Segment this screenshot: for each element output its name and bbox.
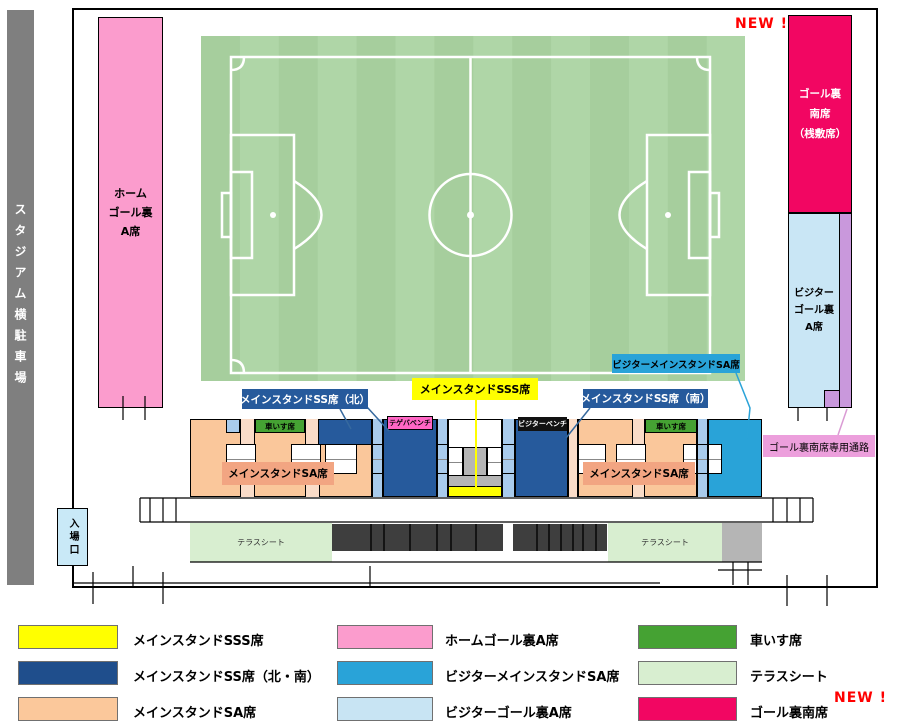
legend-swatch xyxy=(337,661,433,685)
legend-label: メインスタンドSS席（北・南） xyxy=(133,666,320,685)
wheelchair-box-south: 車いす席 xyxy=(645,419,697,433)
legend-label: ホームゴール裏A席 xyxy=(445,630,559,649)
terrace-seat-north: テラスシート xyxy=(190,523,332,562)
legend-item-home-goal-a xyxy=(337,625,433,653)
pitch-stripes xyxy=(201,36,745,381)
vomitory-box xyxy=(708,444,722,474)
legend-swatch xyxy=(638,697,737,721)
stair-cell xyxy=(437,444,448,474)
south-goal-label-line3: （桟敷席） xyxy=(794,124,847,144)
callout-sss-label: メインスタンドSSS席 xyxy=(412,378,538,400)
legend-swatch xyxy=(638,625,737,649)
legend-label: メインスタンドSSS席 xyxy=(133,630,264,649)
callout-visitor-sa-label: ビジターメインスタンドSA席 xyxy=(612,354,740,373)
terrace-label-text: テラスシート xyxy=(641,537,689,548)
corridor-callout-text: ゴール裏南席専用通路 xyxy=(769,439,869,454)
visitor-goal-a-label-line2: ゴール裏 xyxy=(794,302,834,319)
sa-stand-label-text: メインスタンドSA席 xyxy=(589,466,688,481)
aisle-column xyxy=(568,419,578,497)
visitor-goal-a-label-line1: ビジター xyxy=(794,285,834,302)
legend-swatch xyxy=(18,697,118,721)
visitor-goal-a-label-line3: A席 xyxy=(794,319,834,336)
legend-new-badge: NEW ! xyxy=(834,690,887,706)
entrance-label: 入場口 xyxy=(65,518,80,557)
legend-item-wheelchair xyxy=(638,625,737,653)
corridor-strip xyxy=(839,214,851,407)
pitch-drawing xyxy=(201,36,745,381)
home-goal-a-section: ホーム ゴール裏 A席 xyxy=(98,17,163,408)
corridor-callout-label: ゴール裏南席専用通路 xyxy=(763,435,875,457)
stadium-seat-map: スタジアム横駐車場 NEW ! xyxy=(0,0,901,728)
gray-utility-box xyxy=(722,523,762,562)
legend-item-terrace xyxy=(638,661,737,689)
legend-label: ゴール裏南席 xyxy=(750,702,828,721)
south-goal-label-line2: 南席 xyxy=(794,104,847,124)
stair-cell xyxy=(502,444,515,474)
vomitory-box xyxy=(487,447,502,476)
back-blocks-group-b xyxy=(513,524,607,551)
sa-stand-label-north: メインスタンドSA席 xyxy=(222,462,334,485)
legend-label: メインスタンドSA席 xyxy=(133,702,256,721)
south-goal-label-line1: ゴール裏 xyxy=(794,84,847,104)
callout-visitor-sa-text: ビジターメインスタンドSA席 xyxy=(612,357,739,371)
main-stand-sss-block xyxy=(448,486,502,497)
main-stand-ss-north-block xyxy=(383,419,437,497)
stair-cell xyxy=(372,444,383,474)
sa-stand-label-south: メインスタンドSA席 xyxy=(583,462,695,485)
callout-sss-text: メインスタンドSSS席 xyxy=(420,381,531,397)
legend-item-sss xyxy=(18,625,118,653)
home-goal-a-label-line1: ホーム xyxy=(109,184,153,203)
terrace-seat-south: テラスシート xyxy=(608,523,722,562)
parking-strip: スタジアム横駐車場 xyxy=(7,10,34,585)
new-badge-top: NEW ! xyxy=(735,16,788,32)
legend-label: テラスシート xyxy=(750,666,828,685)
callout-ss-north-text: メインスタンドSS席（北） xyxy=(240,392,370,407)
home-bench-label-text: テゲバベンチ xyxy=(389,418,431,428)
legend-label: 車いす席 xyxy=(750,630,802,649)
entrance-box: 入場口 xyxy=(57,508,88,566)
callout-ss-north-label: メインスタンドSS席（北） xyxy=(242,389,368,409)
legend-item-sa xyxy=(18,697,118,725)
sa-stand-label-text: メインスタンドSA席 xyxy=(228,466,327,481)
vomitory-box xyxy=(448,447,463,476)
main-stand-ss-north-upper-block xyxy=(318,419,372,445)
callout-ss-south-text: メインスタンドSS席（南） xyxy=(581,391,711,406)
callout-ss-south-label: メインスタンドSS席（南） xyxy=(583,389,708,408)
wheelchair-label-south: 車いす席 xyxy=(656,421,686,432)
legend-swatch xyxy=(18,625,118,649)
visitor-bench-label-text: ビジターベンチ xyxy=(518,419,567,429)
stair-cell xyxy=(226,419,240,433)
wheelchair-label-north: 車いす席 xyxy=(265,421,295,432)
legend-item-visitor-goal-a xyxy=(337,697,433,725)
terrace-label-text: テラスシート xyxy=(237,537,285,548)
wheelchair-box-north: 車いす席 xyxy=(255,419,305,433)
back-blocks-group-a xyxy=(332,524,503,551)
visitor-goal-a-section: ビジター ゴール裏 A席 xyxy=(788,213,852,408)
home-goal-a-label-line2: ゴール裏 xyxy=(109,203,153,222)
soccer-pitch xyxy=(201,36,745,381)
legend-label: ビジターメインスタンドSA席 xyxy=(445,666,619,685)
home-bench-label: テゲバベンチ xyxy=(387,416,433,430)
parking-label: スタジアム横駐車場 xyxy=(12,203,29,392)
visitor-bench-label: ビジターベンチ xyxy=(518,417,567,431)
legend-item-south-goal xyxy=(638,697,737,725)
legend-swatch xyxy=(337,625,433,649)
stair-cell xyxy=(697,444,708,474)
legend-swatch xyxy=(638,661,737,685)
south-goal-section: ゴール裏 南席 （桟敷席） xyxy=(788,15,852,213)
legend-swatch xyxy=(18,661,118,685)
legend-item-visitor-sa xyxy=(337,661,433,689)
legend-swatch xyxy=(337,697,433,721)
home-goal-a-label-line3: A席 xyxy=(109,222,153,241)
center-tower xyxy=(463,447,487,476)
legend-label: ビジターゴール裏A席 xyxy=(445,702,572,721)
legend-item-ss xyxy=(18,661,118,689)
